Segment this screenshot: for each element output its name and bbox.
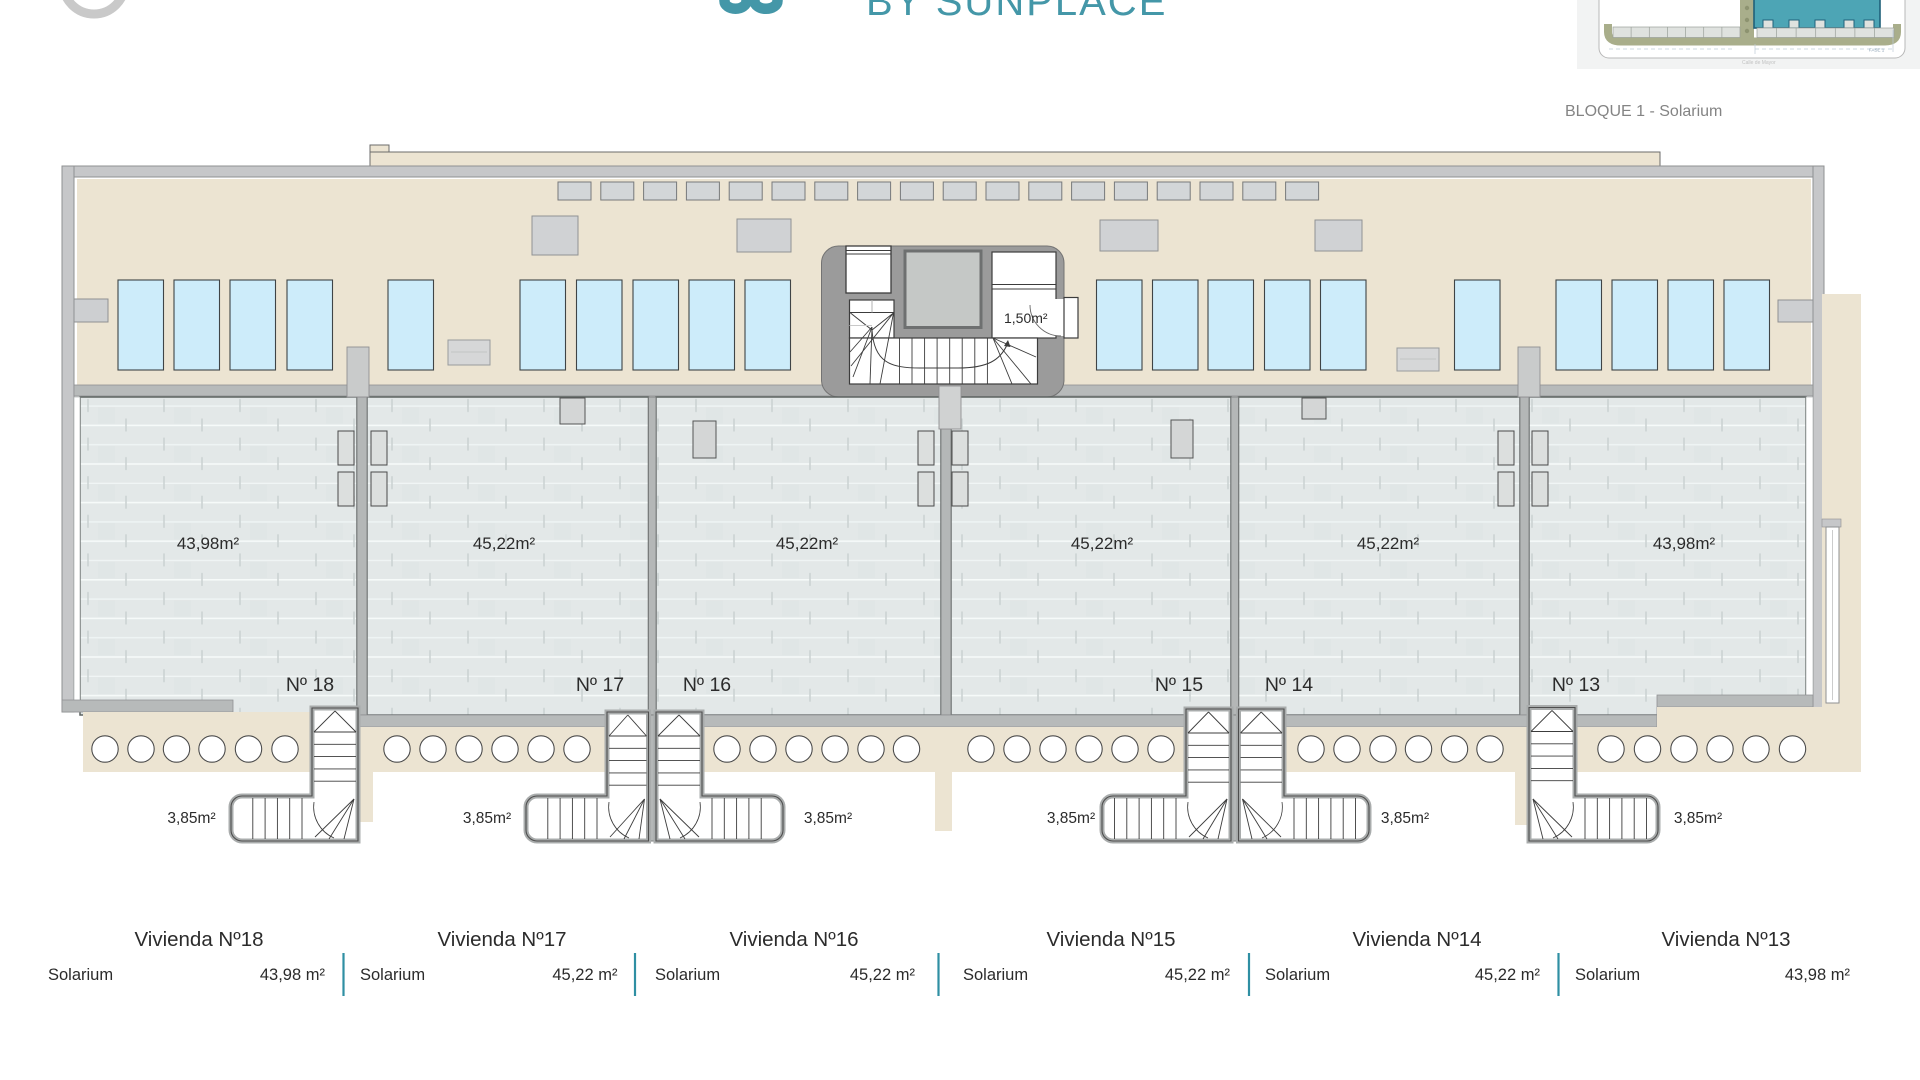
svg-text:BY SUNPLACE: BY SUNPLACE: [866, 0, 1167, 24]
svg-text:FASE 1: FASE 1: [1869, 48, 1885, 53]
svg-text:3,85m²: 3,85m²: [1047, 810, 1095, 827]
svg-text:45,22 m²: 45,22 m²: [1165, 966, 1231, 984]
svg-text:Solarium: Solarium: [1575, 966, 1640, 984]
svg-text:3,85m²: 3,85m²: [804, 810, 852, 827]
svg-text:45,22 m²: 45,22 m²: [552, 966, 618, 984]
svg-text:3,85m²: 3,85m²: [1674, 810, 1722, 827]
svg-text:43,98m²: 43,98m²: [177, 534, 240, 553]
svg-text:45,22m²: 45,22m²: [1357, 534, 1420, 553]
svg-text:Solarium: Solarium: [1265, 966, 1330, 984]
svg-text:Vivienda Nº13: Vivienda Nº13: [1661, 928, 1790, 951]
svg-text:Solarium: Solarium: [963, 966, 1028, 984]
svg-text:45,22m²: 45,22m²: [1071, 534, 1134, 553]
svg-text:Nº 18: Nº 18: [286, 674, 334, 696]
svg-text:3,85m²: 3,85m²: [1381, 810, 1429, 827]
svg-text:Calle de Mayor: Calle de Mayor: [1742, 60, 1776, 66]
svg-text:Vivienda Nº16: Vivienda Nº16: [729, 928, 858, 951]
svg-text:45,22m²: 45,22m²: [473, 534, 536, 553]
svg-text:Solarium: Solarium: [360, 966, 425, 984]
svg-text:Nº 14: Nº 14: [1265, 674, 1313, 696]
svg-text:1,50m²: 1,50m²: [1004, 310, 1048, 326]
svg-text:Vivienda Nº15: Vivienda Nº15: [1046, 928, 1175, 951]
svg-text:45,22 m²: 45,22 m²: [850, 966, 916, 984]
svg-text:Vivienda Nº17: Vivienda Nº17: [437, 928, 566, 951]
svg-text:Nº 13: Nº 13: [1552, 674, 1600, 696]
svg-text:43,98 m²: 43,98 m²: [260, 966, 326, 984]
svg-text:Nº 17: Nº 17: [576, 674, 624, 696]
svg-text:Vivienda Nº18: Vivienda Nº18: [134, 928, 263, 951]
svg-text:45,22 m²: 45,22 m²: [1475, 966, 1541, 984]
svg-text:45,22m²: 45,22m²: [776, 534, 839, 553]
svg-text:Vivienda Nº14: Vivienda Nº14: [1352, 928, 1481, 951]
svg-text:Nº 15: Nº 15: [1155, 674, 1203, 696]
svg-text:Solarium: Solarium: [655, 966, 720, 984]
svg-text:BLOQUE 1 - Solarium: BLOQUE 1 - Solarium: [1565, 103, 1722, 120]
svg-text:Solarium: Solarium: [48, 966, 113, 984]
svg-text:3,85m²: 3,85m²: [167, 810, 215, 827]
svg-text:3,85m²: 3,85m²: [463, 810, 511, 827]
svg-text:Nº 16: Nº 16: [683, 674, 731, 696]
svg-text:43,98 m²: 43,98 m²: [1785, 966, 1851, 984]
svg-text:43,98m²: 43,98m²: [1653, 534, 1716, 553]
